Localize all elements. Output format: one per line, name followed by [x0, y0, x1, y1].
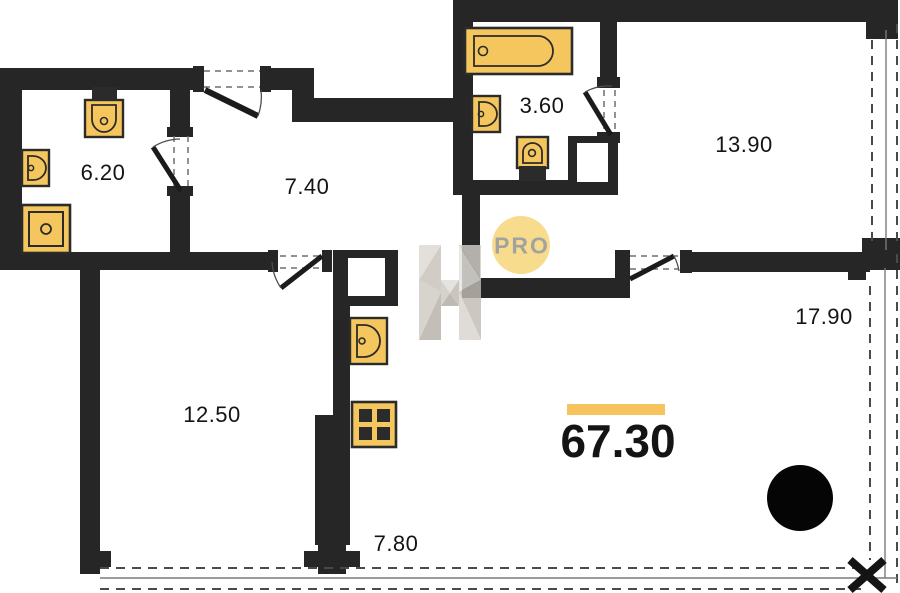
room-area-label-kitchen: 7.80: [374, 531, 419, 557]
h-watermark: [419, 245, 481, 340]
pro-logo-text: PRO: [494, 233, 550, 260]
kitchen-stove-icon: [352, 402, 396, 447]
floor-plan-drawing: [0, 0, 900, 593]
sink-icon: [22, 150, 49, 186]
sink-icon: [472, 96, 500, 132]
room-area-label-bedroom: 13.90: [715, 132, 773, 158]
room-area-label-living-room: 17.90: [795, 304, 853, 330]
toilet-icon: [517, 137, 548, 181]
room-area-label-bathroom-small: 6.20: [81, 160, 126, 186]
window-corner-connector: [850, 560, 884, 590]
kitchen-sink-icon: [350, 318, 387, 364]
room-area-label-bedroom-2: 12.50: [183, 402, 241, 428]
room-area-label-hallway: 7.40: [285, 174, 330, 200]
column-circle-icon: [767, 465, 833, 531]
room-area-label-bathroom: 3.60: [520, 93, 565, 119]
shower-icon: [22, 205, 70, 253]
toilet-icon: [85, 87, 123, 137]
floor-plan: 6.20 7.40 3.60 13.90 17.90 12.50 7.80 67…: [0, 0, 900, 593]
total-area-label: 67.30: [560, 414, 675, 468]
bathtub-icon: [465, 28, 572, 74]
